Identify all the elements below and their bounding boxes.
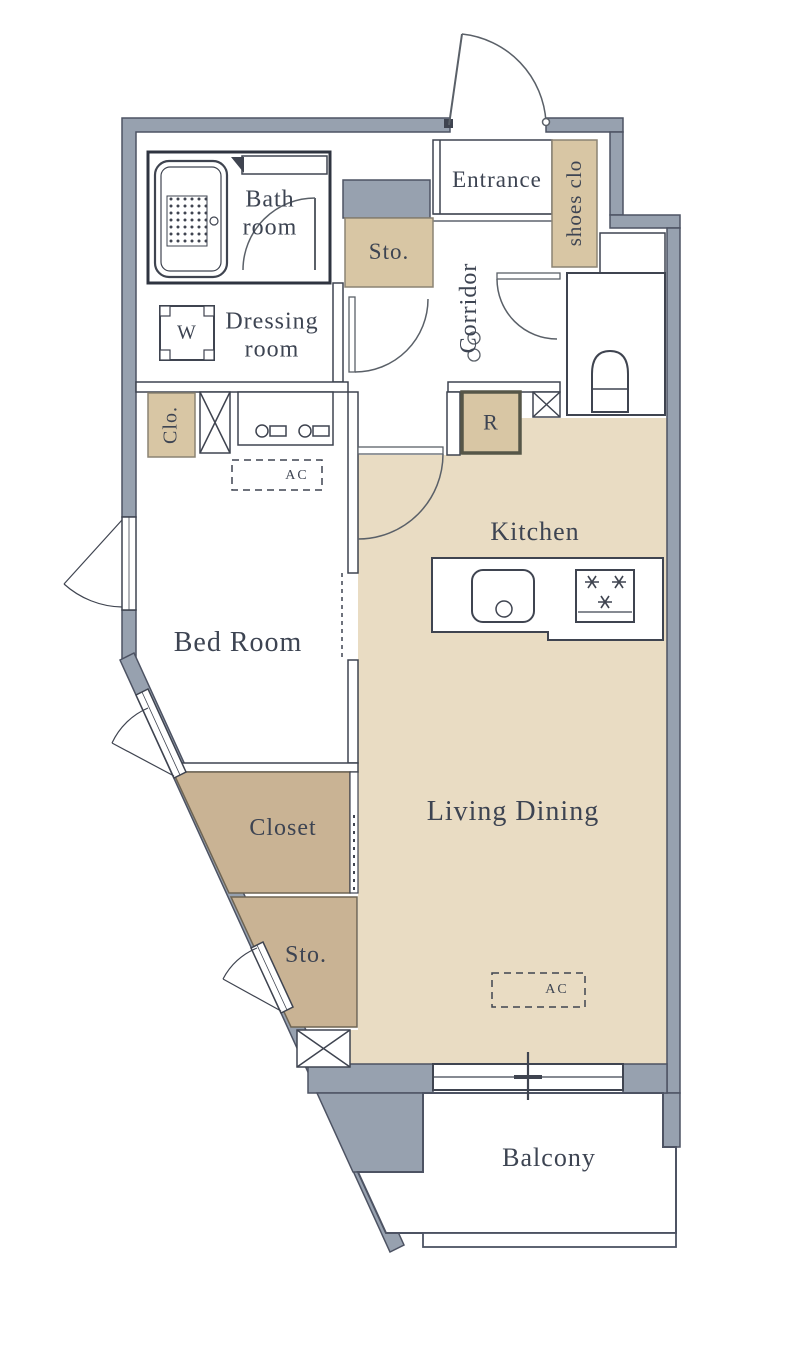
shaft-bottom [297,1030,350,1067]
storage-top-label: Sto. [369,239,409,265]
wall-bedroom-south [175,763,358,772]
wall-entrance-block [343,180,430,218]
wall-bottom-left [308,1064,433,1093]
closet-label: Closet [249,815,316,843]
refrigerator-label: R [483,409,499,434]
shaft-corridor [533,392,560,417]
shoes-closet-label: shoes clo [562,160,586,247]
floor-plan: Bath room Dressing room Entrance shoes c… [0,0,800,1345]
ac-bedroom-label: AC [285,468,308,484]
toilet-nook [600,233,665,273]
shaft-dressing [200,392,230,453]
vanity-sink-icon [238,392,333,445]
living-dining-label: Living Dining [427,796,599,828]
wall-right-main [667,228,680,1093]
living-dining-floor [345,418,667,1064]
wall-top-right [546,118,623,132]
wall-bedroom-east-upper [348,392,358,573]
storage-bottom-label: Sto. [285,942,327,970]
wall-right-upper [610,132,623,215]
wall-step-right [610,215,680,228]
kitchen-label: Kitchen [490,517,579,547]
wall-bedroom-east-lower [348,660,358,763]
wall-balcony-wedge [317,1093,423,1172]
bathtub-icon [155,161,227,277]
wall-dressing-east [333,283,343,382]
dressing-door [349,297,428,372]
shower-counter [242,156,327,174]
wall-dressing-south [136,382,348,392]
wall-bottom-right [623,1064,667,1093]
toilet-door [497,273,560,339]
balcony-railing [423,1233,676,1247]
bedroom-label: Bed Room [174,627,303,659]
entrance-label: Entrance [452,167,542,193]
ac-living-label: AC [545,982,568,998]
bathroom-label: Bath room [243,186,298,241]
dressing-room-label: Dressing room [225,308,318,363]
balcony-label: Balcony [502,1143,596,1173]
casement-window-diagonal-upper [112,689,186,778]
floorplan-drawing [0,0,800,1345]
wall-right-balcony [663,1093,680,1147]
entrance-door [444,34,550,128]
corridor-label: Corridor [456,263,484,354]
closet-small-label: Clo. [160,406,183,444]
washer-label: W [177,322,197,345]
casement-window-left [64,517,136,610]
wall-kitchen-west [447,392,460,455]
toilet-icon [592,351,628,412]
